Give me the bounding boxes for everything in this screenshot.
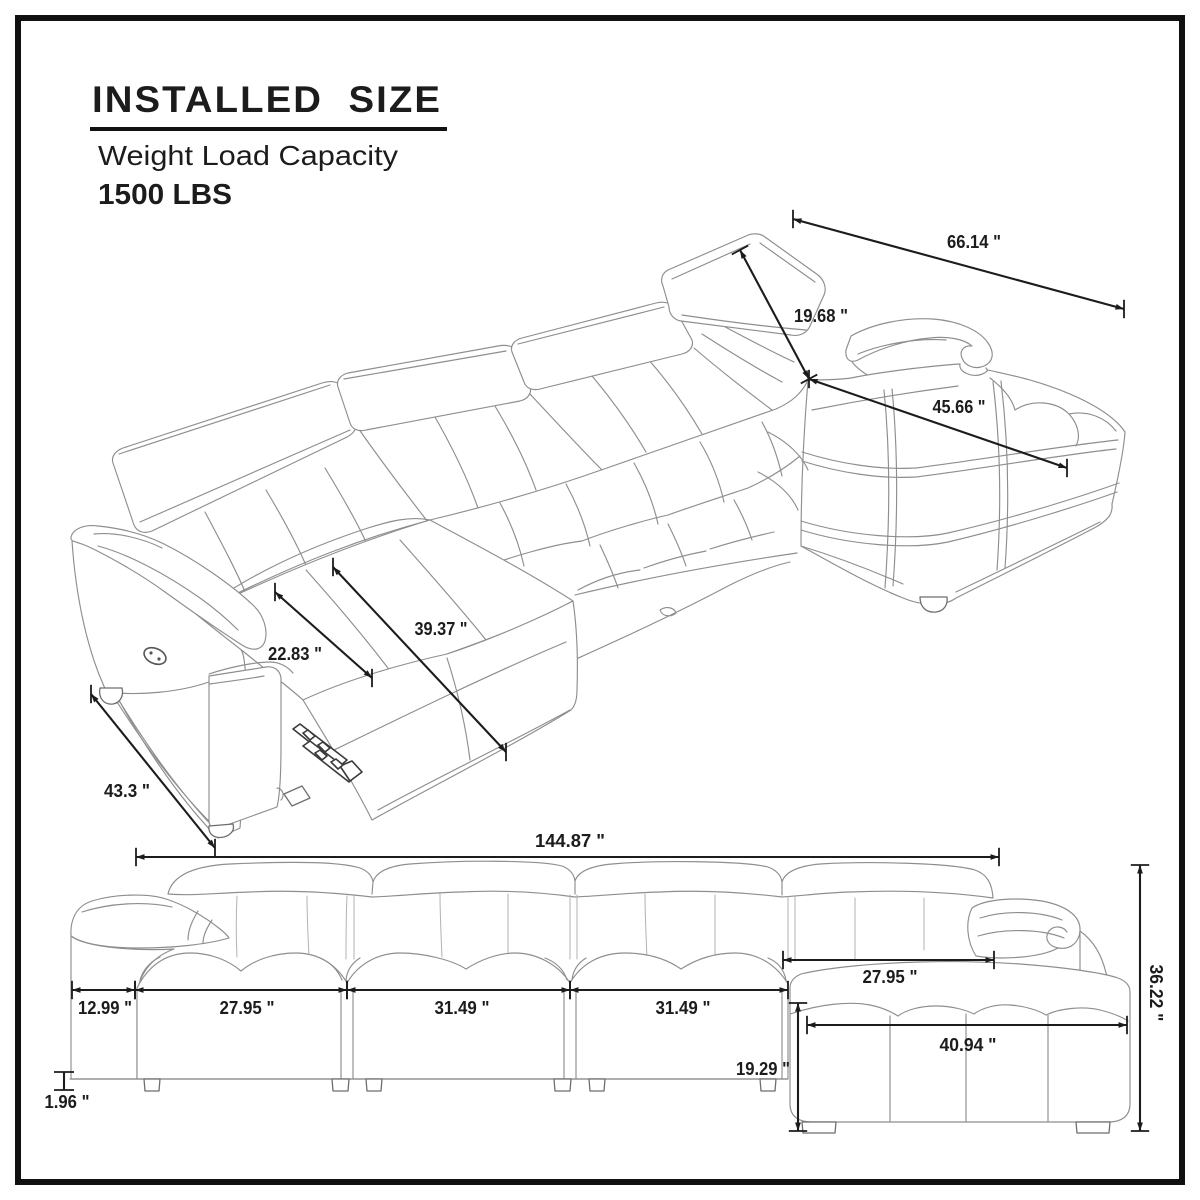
svg-text:19.68 ": 19.68 " (794, 305, 848, 326)
svg-text:144.87 ": 144.87 " (535, 830, 605, 851)
svg-text:31.49 ": 31.49 " (656, 997, 711, 1018)
svg-text:36.22 ": 36.22 " (1146, 965, 1167, 1022)
svg-text:66.14 ": 66.14 " (947, 231, 1001, 252)
svg-text:39.37 ": 39.37 " (415, 618, 468, 639)
svg-text:INSTALLED SIZE: INSTALLED SIZE (92, 79, 442, 120)
svg-text:1.96 ": 1.96 " (45, 1091, 90, 1112)
svg-text:22.83 ": 22.83 " (268, 643, 322, 664)
svg-text:27.95 ": 27.95 " (863, 966, 918, 987)
svg-text:19.29 ": 19.29 " (736, 1058, 790, 1079)
svg-text:43.3 ": 43.3 " (104, 780, 150, 801)
svg-text:31.49 ": 31.49 " (435, 997, 490, 1018)
svg-text:45.66 ": 45.66 " (933, 396, 986, 417)
svg-text:Weight Load Capacity: Weight Load Capacity (98, 140, 398, 171)
svg-text:40.94 ": 40.94 " (940, 1034, 997, 1055)
svg-text:27.95 ": 27.95 " (220, 997, 275, 1018)
svg-text:12.99 ": 12.99 " (78, 997, 132, 1018)
svg-text:1500 LBS: 1500 LBS (98, 179, 232, 211)
